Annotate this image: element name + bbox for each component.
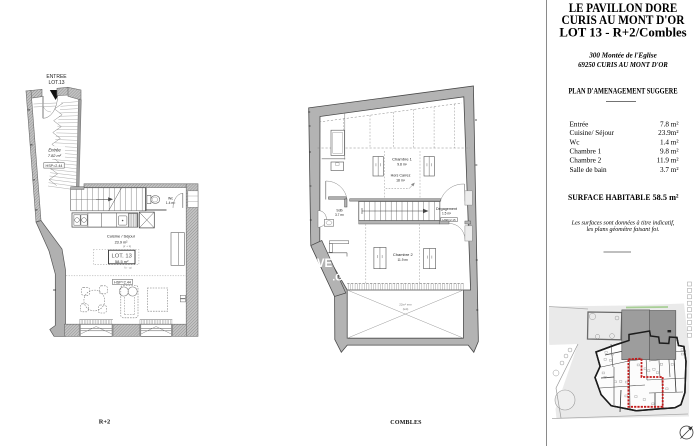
svg-text:Hors Carrez: Hors Carrez (391, 174, 411, 178)
svg-text:18 m²: 18 m² (396, 179, 406, 183)
svg-text:1.4 m²: 1.4 m² (166, 201, 176, 205)
svg-text:Chambre 2: Chambre 2 (570, 157, 602, 165)
svg-text:COMBLES: COMBLES (390, 420, 422, 426)
svg-text:3.7 m²: 3.7 m² (660, 166, 679, 174)
svg-text:Chambre 1: Chambre 1 (570, 148, 602, 156)
svg-text:VE: VE (317, 258, 333, 270)
svg-text:les plans géométre faisant foi: les plans géométre faisant foi. (586, 226, 659, 233)
svg-text:SURFACE HABITABLE: SURFACE HABITABLE (568, 192, 651, 202)
svg-text:Chambre 1: Chambre 1 (392, 157, 413, 162)
svg-text:LOT 13 - R+2/Combles: LOT 13 - R+2/Combles (559, 24, 686, 39)
svg-text:Les surfaces sont données à ti: Les surfaces sont données à titre indica… (571, 220, 675, 227)
svg-text:(toit): (toit) (403, 307, 409, 311)
svg-text:gr + tg: gr + tg (123, 244, 132, 248)
svg-text:.G.: .G. (332, 273, 346, 284)
svg-text:PLAN D'AMENAGEMENT SUGGERE: PLAN D'AMENAGEMENT SUGGERE (568, 87, 677, 96)
svg-text:9.8 m²: 9.8 m² (397, 163, 407, 167)
svg-text:LOT.13: LOT.13 (48, 80, 64, 86)
svg-text:22m² env: 22m² env (399, 303, 412, 307)
svg-text:1.5 m²: 1.5 m² (442, 212, 451, 216)
svg-text:R+2: R+2 (99, 419, 110, 426)
svg-text:7.8 m²: 7.8 m² (660, 121, 679, 129)
svg-text:3.7 m²: 3.7 m² (335, 213, 344, 217)
svg-text:58.5 m²: 58.5 m² (653, 192, 679, 202)
svg-text:Chambre 2: Chambre 2 (393, 252, 414, 257)
svg-text:Cuisine/ Séjour: Cuisine/ Séjour (570, 129, 615, 137)
svg-text:300 Montée de l'Eglise: 300 Montée de l'Eglise (588, 51, 657, 60)
svg-text:11.9 m²: 11.9 m² (398, 258, 409, 262)
svg-text:11.9 m²: 11.9 m² (657, 157, 679, 165)
svg-text:Cuisine / Séjour: Cuisine / Séjour (107, 234, 136, 239)
svg-text:58.5 m²: 58.5 m² (115, 259, 129, 264)
svg-text:Dégagement: Dégagement (436, 207, 457, 211)
svg-text:9.8 m²: 9.8 m² (660, 148, 679, 156)
svg-text:Wc: Wc (570, 139, 580, 147)
svg-text:23.9m²: 23.9m² (658, 129, 678, 137)
svg-text:1.4 m²: 1.4 m² (660, 139, 679, 147)
svg-text:Entrée: Entrée (570, 121, 589, 129)
svg-text:69250 CURIS AU MONT D'OR: 69250 CURIS AU MONT D'OR (578, 60, 668, 69)
svg-text:HSP=2.44: HSP=2.44 (46, 164, 63, 168)
svg-text:fo ∙ gt: fo ∙ gt (124, 265, 131, 269)
svg-text:Salle de bain: Salle de bain (570, 166, 608, 174)
svg-text:Entrée: Entrée (48, 148, 61, 153)
svg-text:7.82 m²: 7.82 m² (48, 153, 62, 158)
svg-text:HSP=2.44: HSP=2.44 (114, 281, 131, 285)
